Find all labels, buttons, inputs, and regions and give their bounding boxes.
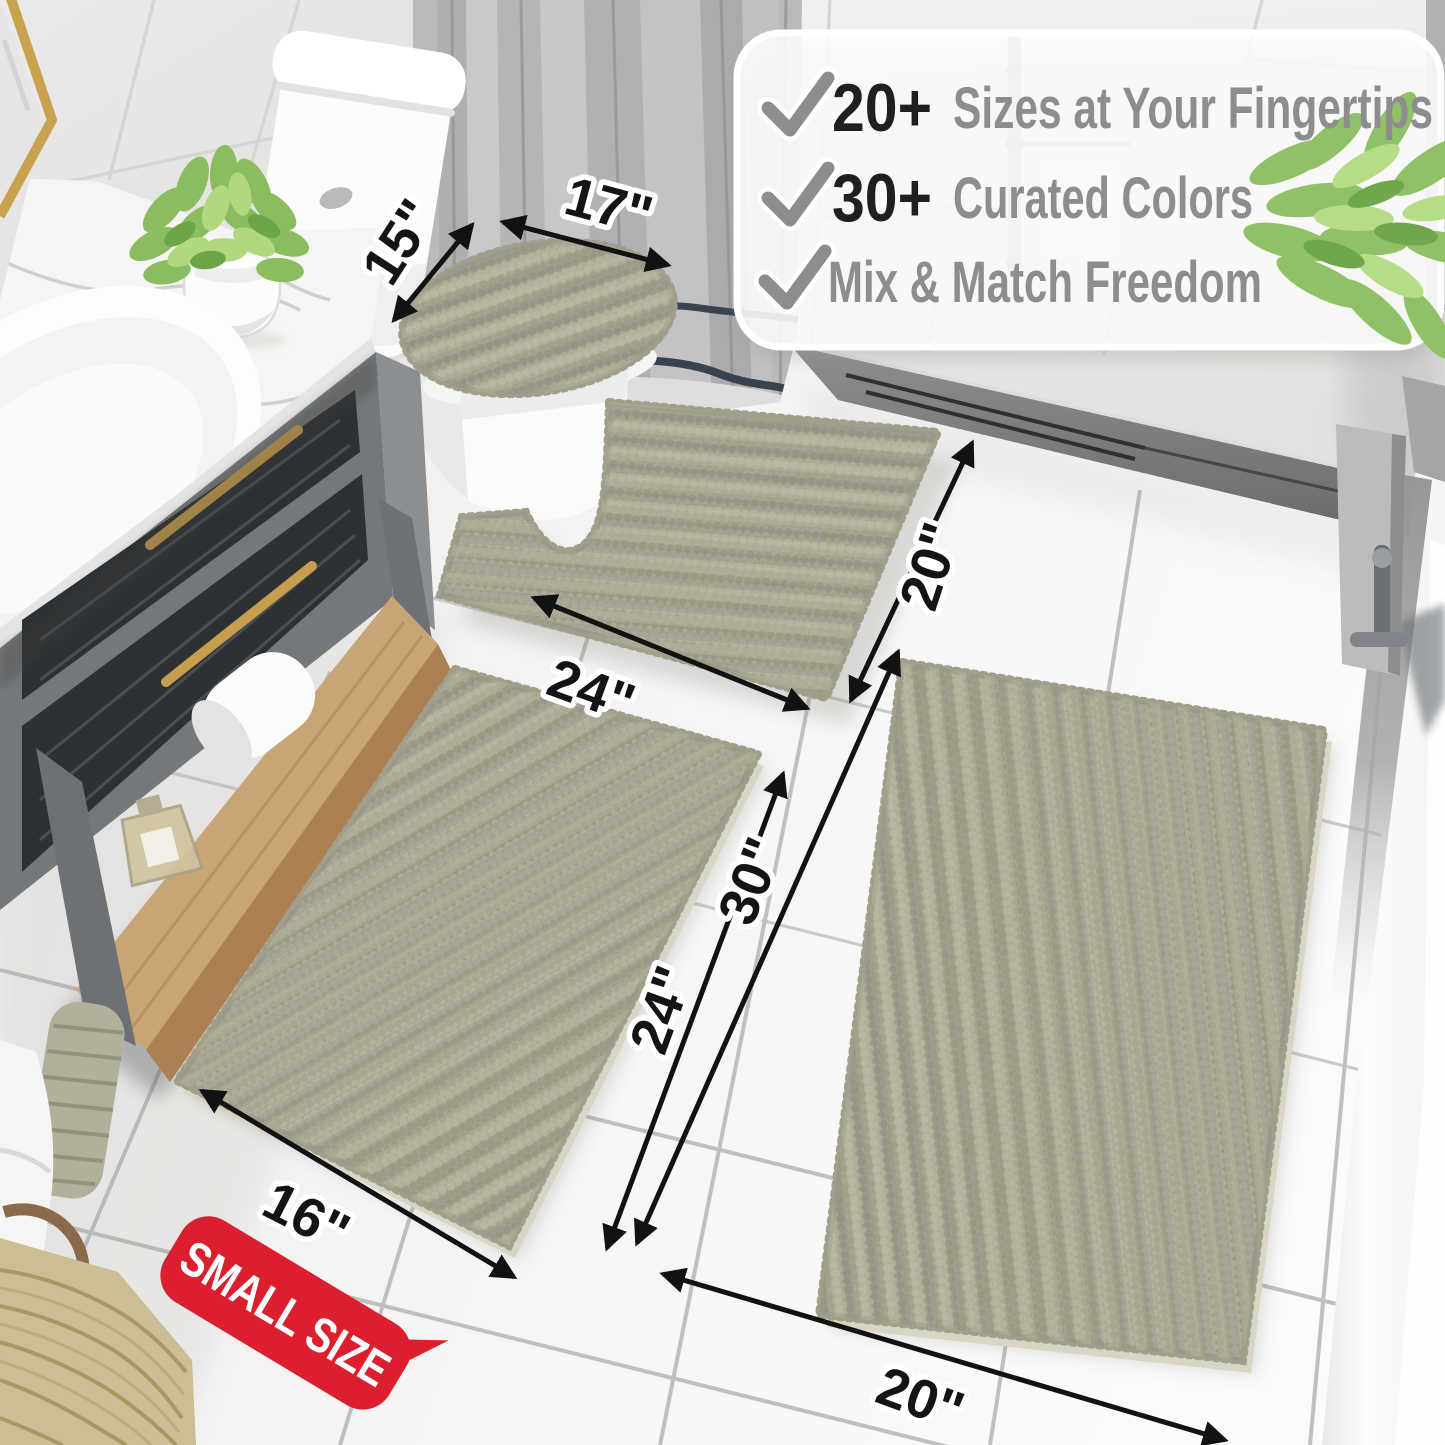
svg-text:30+: 30+: [832, 160, 932, 236]
svg-text:Curated Colors: Curated Colors: [953, 166, 1253, 231]
svg-text:20+: 20+: [832, 70, 932, 146]
svg-text:Mix & Match Freedom: Mix & Match Freedom: [828, 250, 1262, 315]
svg-text:Sizes at Your Fingertips: Sizes at Your Fingertips: [953, 76, 1433, 141]
